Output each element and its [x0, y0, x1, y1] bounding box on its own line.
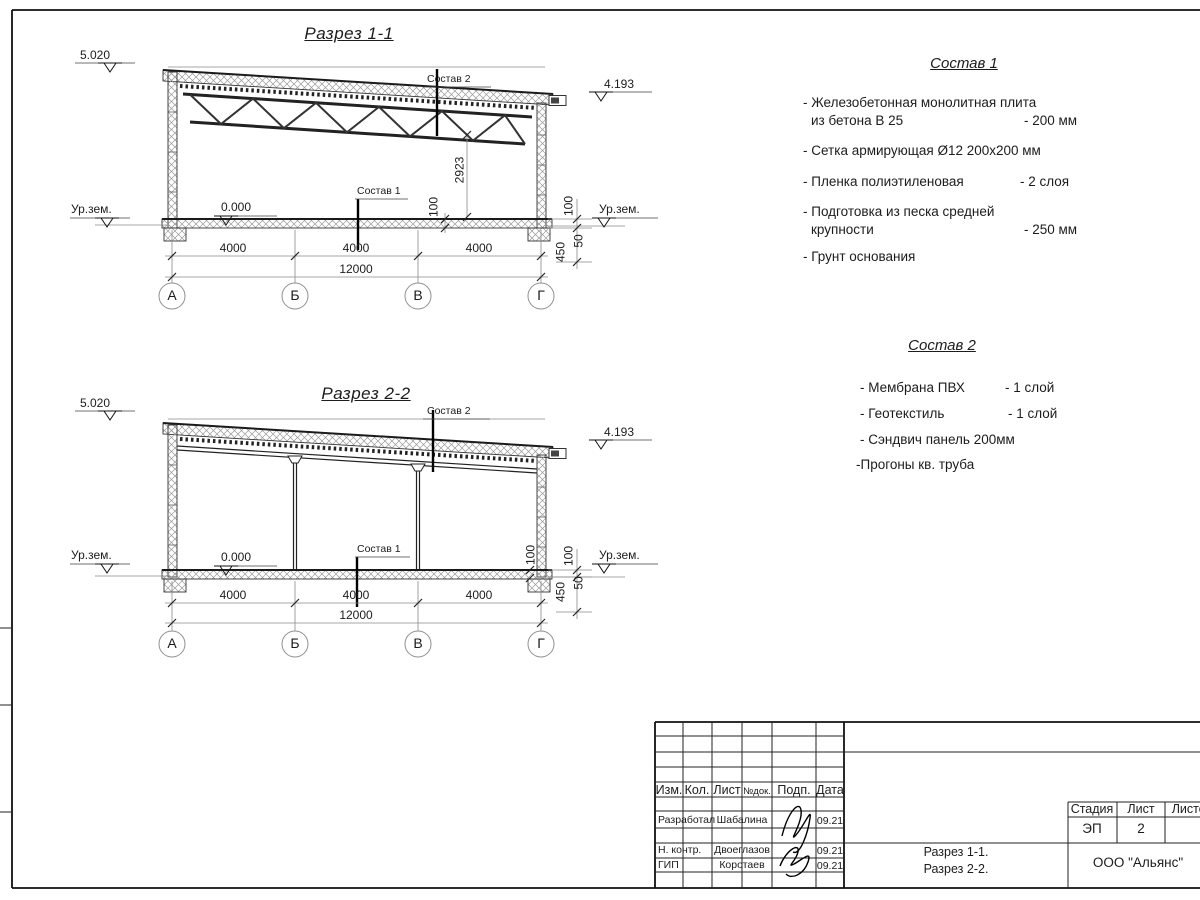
titleblock-date: 09.21 [817, 816, 843, 827]
sostav1-item-line: - Сетка армирующая Ø12 200x200 мм [803, 144, 1041, 158]
section2-ground-left: Ур.зем. [71, 549, 112, 562]
axis-bubble-g: Г [537, 288, 545, 303]
titleblock-doc-title-line2: Разрез 2-2. [924, 863, 989, 876]
section1-dim-span: 4000 [343, 242, 370, 255]
titleblock-stage-label: Стадия [1071, 803, 1114, 816]
titleblock-col-ndok: №док. [743, 787, 771, 797]
titleblock-role: Н. контр. [658, 845, 701, 856]
section1-title: Разрез 1-1 [304, 25, 393, 43]
sostav1-item-line: - Грунт основания [803, 250, 915, 264]
section1-dim-height: 2923 [454, 157, 467, 184]
drawing-sheet: Разрез 1-1 5.020 4.193 Ур.зем. Ур.зем. 0… [0, 0, 1200, 900]
section2-ground-right: Ур.зем. [599, 549, 640, 562]
section2-dim-span: 4000 [343, 589, 370, 602]
sostav1-item-value: - 2 слоя [1020, 175, 1069, 189]
section1-leader-floor: Состав 1 [357, 186, 401, 197]
titleblock-date: 09.21 [817, 861, 843, 872]
section2-leader-roof: Состав 2 [427, 406, 471, 417]
sostav2-item-line: -Прогоны кв. труба [856, 458, 974, 472]
sostav2-item-line: - Мембрана ПВХ [860, 381, 965, 395]
sostav1-title: Состав 1 [930, 56, 998, 72]
section2-dim-right-100: 100 [563, 546, 576, 566]
titleblock-name: Двоеглазов [714, 845, 770, 856]
drawing-linework [0, 0, 1200, 900]
axis-bubble-a: А [167, 288, 176, 303]
section1-dim-right-50: 50 [573, 234, 586, 247]
titleblock-stage-value: ЭП [1082, 822, 1101, 836]
titleblock-company: ООО "Альянс" [1093, 856, 1183, 870]
axis-bubble-v: В [413, 636, 422, 651]
sostav2-item-line: - Геотекстиль [860, 407, 944, 421]
sheet-frame [0, 10, 1200, 888]
titleblock-date: 09.21 [817, 846, 843, 857]
section1-dim-span: 4000 [220, 242, 247, 255]
section2-dim-span: 4000 [466, 589, 493, 602]
sostav1-item-line: крупности [811, 223, 874, 237]
titleblock-doc-title-line1: Разрез 1-1. [924, 846, 989, 859]
titleblock-name: Коротаев [719, 860, 764, 871]
section2-dim-right-50: 50 [573, 576, 586, 589]
axis-bubble-b: Б [290, 288, 299, 303]
sostav1-item-value: - 250 мм [1024, 223, 1077, 237]
axis-bubble-b: Б [290, 636, 299, 651]
sostav2-item-line: - Сэндвич панель 200мм [860, 433, 1015, 447]
sostav1-item-line: - Подготовка из песка средней [803, 205, 994, 219]
section2-dim-floor: 100 [525, 545, 538, 565]
titleblock-name: Шабалина [717, 815, 768, 826]
section2-elev-floor: 0.000 [221, 551, 251, 564]
titleblock-col-podp: Подп. [777, 784, 810, 797]
sostav2-item-value: - 1 слой [1008, 407, 1057, 421]
sostav1-item-value: - 200 мм [1024, 114, 1077, 128]
titleblock-col-izm: Изм. [656, 784, 683, 797]
section1-dim-right-450: 450 [555, 242, 568, 262]
section2-dim-span: 4000 [220, 589, 247, 602]
titleblock-role: Разработал [658, 815, 715, 826]
titleblock-sheet-value: 2 [1137, 822, 1145, 836]
section2-dim-total: 12000 [339, 609, 372, 622]
section2-elev-right: 4.193 [604, 426, 634, 439]
sostav1-item-line: из бетона В 25 [811, 114, 903, 128]
section2-title: Разрез 2-2 [321, 385, 410, 403]
titleblock-sheets-label: Листов [1172, 803, 1200, 816]
section1-elev-right: 4.193 [604, 78, 634, 91]
section1-leader-roof: Состав 2 [427, 74, 471, 85]
section2-dim-right-450: 450 [555, 582, 568, 602]
section1-elev-floor: 0.000 [221, 201, 251, 214]
axis-bubble-g: Г [537, 636, 545, 651]
section1-dim-total: 12000 [339, 263, 372, 276]
section1-elev-left: 5.020 [80, 49, 110, 62]
signature [782, 806, 810, 852]
titleblock-col-kol: Кол. [685, 784, 710, 797]
section1-dim-right-100: 100 [563, 196, 576, 216]
section1-ground-left: Ур.зем. [71, 203, 112, 216]
section2-elev-left: 5.020 [80, 397, 110, 410]
axis-bubble-a: А [167, 636, 176, 651]
titleblock-col-data: Дата [816, 784, 844, 797]
sostav2-item-value: - 1 слой [1005, 381, 1054, 395]
sostav1-item-line: - Пленка полиэтиленовая [803, 175, 964, 189]
section1-ground-right: Ур.зем. [599, 203, 640, 216]
titleblock-sheet-label: Лист [1127, 803, 1154, 816]
section1-dim-floor: 100 [428, 197, 441, 217]
sostav1-item-line: - Железобетонная монолитная плита [803, 96, 1036, 110]
sostav2-title: Состав 2 [908, 338, 976, 354]
section2-leader-floor: Состав 1 [357, 544, 401, 555]
axis-bubble-v: В [413, 288, 422, 303]
section1-dim-span: 4000 [466, 242, 493, 255]
titleblock-role: ГИП [658, 860, 679, 871]
titleblock-col-list: Лист [713, 784, 740, 797]
